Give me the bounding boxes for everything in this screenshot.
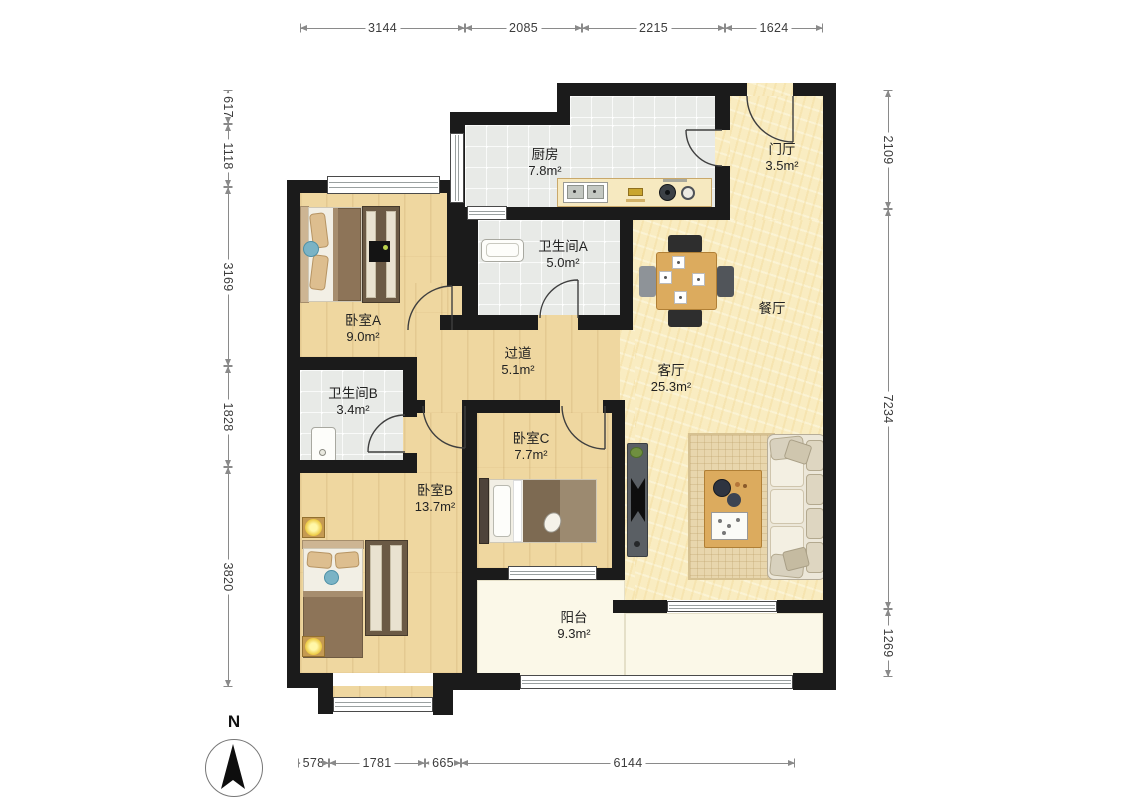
dining-chair [639,266,656,297]
wall-segment [440,315,538,330]
wall-segment [715,96,730,130]
balcony-window [520,675,793,689]
tv-cabinet [627,443,648,557]
dimension-value: 7234 [881,391,895,426]
room-area: 25.3m² [651,379,691,396]
plate-dot [697,278,700,281]
room-label-bedroom-c: 卧室C7.7m² [513,430,550,464]
wall-segment [777,600,836,613]
wall-segment [557,83,747,96]
dimension-left-5: 3820 [222,467,234,687]
room-area: 9.0m² [345,329,381,346]
shower-drain [319,449,326,456]
dimension-value: 3169 [221,259,235,294]
dimension-value: 1624 [756,21,791,35]
balcony-floor-left [477,580,625,677]
room-area: 3.4m² [328,402,378,419]
dimension-value: 2215 [636,21,671,35]
dimension-value: 3820 [221,559,235,594]
wall-segment [287,180,300,688]
dimension-value: 6144 [610,756,645,770]
room-area: 9.3m² [557,626,590,643]
dimension-value: 2085 [506,21,541,35]
bed-blanket [523,480,560,542]
room-name: 过道 [501,345,534,362]
stove-burner-dot [665,190,670,195]
dimension-right-2: 7234 [882,209,894,609]
wardrobe-door [390,545,402,631]
wall-segment [620,207,633,330]
dimension-value: 1118 [221,139,235,172]
bed-pillow [334,551,359,569]
room-name: 客厅 [651,362,691,379]
room-name: 门厅 [765,141,798,158]
bed-cushion [324,570,339,585]
dimension-right-1: 2109 [882,90,894,209]
stove-controls [663,179,687,182]
table-item [743,484,747,488]
stove-burner [681,186,695,200]
bed-sheet-stripe [513,480,522,542]
sofa-back-cushion [806,474,824,505]
bedroom-a-window [327,176,440,194]
dimension-right-3: 1269 [882,609,894,677]
room-name: 厨房 [528,146,561,163]
tray-item [736,518,740,522]
room-label-bathroom-b: 卫生间B3.4m² [328,385,378,419]
dimension-top-2: 2085 [465,22,582,34]
wall-segment [462,207,478,330]
dimension-bottom-4: 6144 [461,757,795,769]
bed-cushion [303,241,319,257]
cutting-board [628,188,643,196]
table-item [735,482,740,487]
dimension-left-2: 1118 [222,124,234,187]
bathroom-a-window [467,206,507,220]
room-name: 阳台 [557,609,590,626]
counter-item [626,199,645,202]
dimension-value: 578 [300,756,328,770]
room-label-bedroom-b: 卧室B13.7m² [415,482,455,516]
room-area: 13.7m² [415,499,455,516]
north-label: N [222,712,246,732]
bedroom-c-window [508,566,597,580]
dimension-top-3: 2215 [582,22,725,34]
tray-item [718,519,722,523]
dimension-value: 1828 [221,399,235,434]
wall-segment [450,112,570,125]
kitchen-door-floor [715,130,730,166]
wall-segment [613,600,667,613]
dimension-bottom-3: 665 [425,757,461,769]
dimension-value: 617 [221,93,235,121]
sofa-back-cushion [806,542,824,573]
room-area: 5.0m² [538,255,588,272]
compass-circle [205,739,263,797]
wall-segment [578,315,633,330]
wall-segment [612,400,625,580]
room-label-hallway: 过道5.1m² [501,345,534,379]
room-name: 卧室A [345,312,381,329]
balcony-floor-right [625,613,823,677]
dining-chair [668,309,702,327]
room-label-kitchen: 厨房7.8m² [528,146,561,180]
room-label-dining: 餐厅 [759,300,786,317]
room-area: 7.8m² [528,163,561,180]
room-name: 卫生间B [328,385,378,402]
entry-opening-floor [747,83,793,96]
plate-dot [679,296,682,299]
dimension-bottom-2: 1781 [329,757,425,769]
wall-segment [287,460,417,473]
room-label-living: 客厅25.3m² [651,362,691,396]
cabinet-knob [634,541,640,547]
room-area: 5.1m² [501,362,534,379]
dimension-left-1: 617 [222,90,234,124]
kettle [727,493,741,507]
room-area: 3.5m² [765,158,798,175]
dining-chair [668,235,702,253]
wardrobe-tv-dot [383,245,388,250]
wardrobe-tv [369,241,390,262]
plate-dot [664,276,667,279]
lamp [305,638,322,655]
sink-drain-dot [593,190,596,193]
dimension-top-1: 3144 [300,22,465,34]
bed-blanket-fold [333,208,338,301]
dimension-value: 1269 [881,625,895,660]
wall-segment [318,688,333,714]
dimension-left-3: 3169 [222,187,234,366]
wardrobe-door [370,545,382,631]
wall-segment [448,673,520,690]
room-name: 卧室B [415,482,455,499]
dimension-value: 665 [429,756,457,770]
wall-segment [415,400,425,413]
wall-segment [287,673,333,688]
room-label-bedroom-a: 卧室A9.0m² [345,312,381,346]
sofa-back-cushion [806,508,824,539]
sofa-seat-cushion [770,489,804,524]
wall-segment [462,400,477,580]
lamp [305,519,322,536]
bed-headboard [479,478,489,544]
wall-segment [793,673,836,690]
room-area: 7.7m² [513,447,550,464]
sink-drain-dot [573,190,576,193]
bed-pillow [306,551,332,569]
room-label-bathroom-a: 卫生间A5.0m² [538,238,588,272]
kitchen-floor-upper [570,96,715,126]
bathtub-inner [486,243,519,257]
room-label-foyer: 门厅3.5m² [765,141,798,175]
dining-chair [717,266,734,297]
bed-blanket-fold [303,591,363,597]
dimension-value: 1781 [359,756,394,770]
plant [630,447,643,458]
wall-segment [287,357,417,370]
room-name: 餐厅 [759,300,786,317]
room-label-balcony: 阳台9.3m² [557,609,590,643]
wall-segment [447,193,462,286]
dimension-bottom-1: 578 [298,757,329,769]
dimension-left-4: 1828 [222,366,234,467]
dimension-value: 3144 [365,21,400,35]
bed-pillow [493,485,511,537]
tray-item [727,524,731,528]
floor-plan-image: 厨房7.8m²门厅3.5m²卫生间A5.0m²餐厅卧室A9.0m²过道5.1m²… [0,0,1125,800]
bed-blanket [560,480,596,542]
room-name: 卫生间A [538,238,588,255]
wall-segment [823,83,836,690]
room-name: 卧室C [513,430,550,447]
bay-window [333,697,433,712]
kitchen-window [450,133,464,203]
dimension-value: 2109 [881,132,895,167]
plate-dot [677,261,680,264]
tray-item [722,531,726,535]
balcony-sliding-door [667,601,777,612]
dimension-top-4: 1624 [725,22,823,34]
shower-tray [311,427,336,463]
